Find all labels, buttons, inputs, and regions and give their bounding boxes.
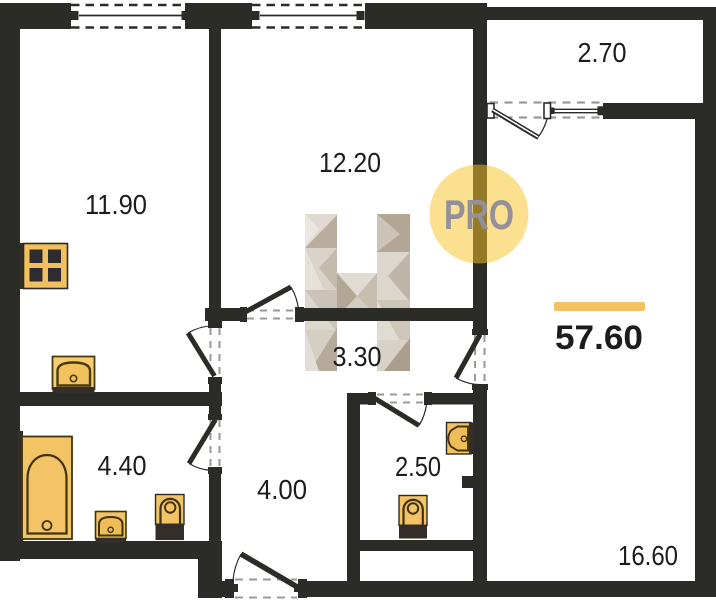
- svg-text:57.60: 57.60: [555, 319, 643, 357]
- svg-text:PRO: PRO: [444, 191, 514, 238]
- svg-text:2.50: 2.50: [395, 451, 441, 482]
- svg-text:3.30: 3.30: [333, 341, 382, 372]
- svg-text:4.00: 4.00: [257, 474, 307, 505]
- svg-text:12.20: 12.20: [319, 147, 381, 178]
- svg-text:2.70: 2.70: [578, 37, 627, 68]
- svg-text:4.40: 4.40: [98, 450, 147, 481]
- svg-text:16.60: 16.60: [618, 540, 678, 571]
- svg-text:11.90: 11.90: [85, 189, 147, 220]
